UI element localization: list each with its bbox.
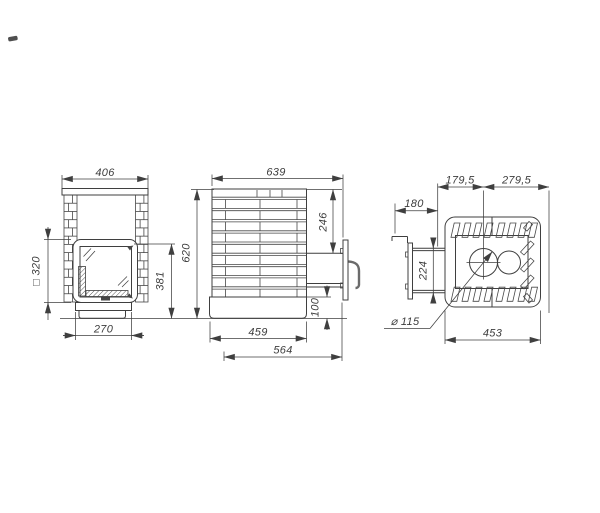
side-view: 639 620 246 100 459 <box>181 167 360 362</box>
dim-side-base-height: 100 <box>307 286 332 331</box>
dim-side-depth-with-door: 564 <box>224 303 342 362</box>
top-view: 180 179,5 279,5 224 ⌀ 115 <box>384 175 549 345</box>
top-inner-compartment <box>456 236 529 289</box>
dim-top-body-width: 453 <box>445 311 541 345</box>
dim-front-top-width: 406 <box>62 167 148 188</box>
dim-side-overall-height: 620 <box>181 190 215 319</box>
svg-text:246: 246 <box>318 212 330 233</box>
dim-front-door-square: □ 320 <box>31 227 72 320</box>
svg-text:179,5: 179,5 <box>445 175 475 187</box>
stove-top-cap <box>62 189 148 196</box>
svg-text:564: 564 <box>273 345 292 357</box>
svg-text:453: 453 <box>483 328 503 340</box>
door-handle <box>79 267 86 297</box>
hinge-top-view-1 <box>406 252 409 257</box>
side-base <box>210 297 307 318</box>
side-body <box>212 189 307 297</box>
hinge-top <box>341 249 344 254</box>
watermark-artifact <box>8 36 18 42</box>
svg-text:224: 224 <box>418 261 430 281</box>
dim-side-door-offset: 246 <box>307 190 342 254</box>
door-flange-side <box>343 240 348 300</box>
svg-text:639: 639 <box>266 167 285 179</box>
front-view: 406 □ 320 381 270 <box>31 167 176 340</box>
svg-text:406: 406 <box>95 167 115 179</box>
svg-text:⌀ 115: ⌀ 115 <box>391 316 420 328</box>
svg-text:180: 180 <box>404 198 424 210</box>
base-plinth <box>79 311 126 319</box>
dim-side-body-depth: 459 <box>210 322 307 343</box>
dim-top-handle-depth: 180 <box>395 184 438 247</box>
svg-text:270: 270 <box>93 324 114 336</box>
dim-front-base-width: 270 <box>63 312 144 340</box>
dim-top-tunnel-width: 224 <box>418 238 434 304</box>
svg-text:459: 459 <box>248 327 267 339</box>
hinge-top-view-2 <box>406 284 409 289</box>
door-handle-side <box>349 262 360 289</box>
drawing-page: 406 □ 320 381 270 <box>0 0 600 513</box>
svg-text:100: 100 <box>310 297 322 317</box>
secondary-opening <box>498 251 521 274</box>
door-flange-top <box>408 243 413 299</box>
base-step <box>76 303 132 311</box>
technical-drawing: 406 □ 320 381 270 <box>0 0 600 513</box>
svg-text:381: 381 <box>155 271 167 290</box>
door-grate <box>86 291 128 297</box>
door-latch <box>101 298 110 301</box>
svg-text:279,5: 279,5 <box>501 175 532 187</box>
dim-top-flue-to-back: 279,5 <box>484 175 550 314</box>
side-slats <box>212 190 307 297</box>
svg-text:620: 620 <box>181 243 193 263</box>
svg-text:□ 320: □ 320 <box>31 256 43 286</box>
dim-top-front-to-flue: 179,5 <box>438 175 484 188</box>
